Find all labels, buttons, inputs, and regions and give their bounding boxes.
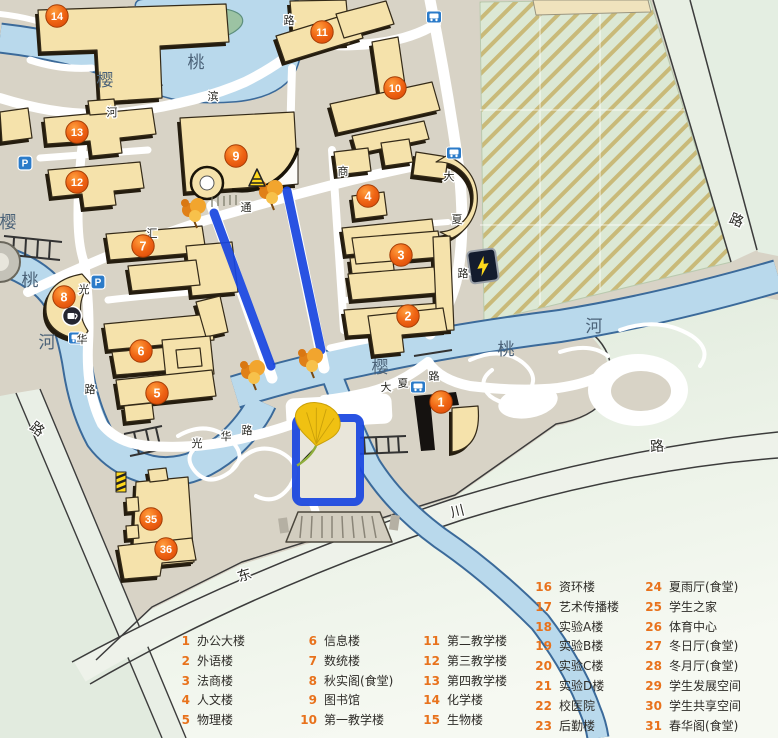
legend-item: 7数统楼 [297,652,393,672]
marker-6[interactable]: 6 [130,340,152,362]
marker-2[interactable]: 2 [397,305,419,327]
svg-text:3: 3 [398,248,405,262]
bus-stop-icon[interactable] [411,381,426,393]
svg-text:5: 5 [154,386,161,400]
legend-label: 资环楼 [559,580,595,594]
svg-text:12: 12 [71,177,83,189]
legend-number: 24 [642,578,662,598]
river-label: 桃 [498,340,515,360]
road-label: 路 [85,383,96,396]
campus-map: P P 樱 桃 樱 桃 河 樱 桃 河 河 滨 路 汇 通 商 大 夏 路 大 … [0,0,778,738]
road-label: 商 [338,164,349,178]
legend-label: 生物楼 [447,713,483,727]
legend-number: 13 [420,672,440,692]
legend-number: 23 [532,717,552,737]
legend-number: 28 [642,657,662,677]
legend-item: 13第四教学楼 [420,672,507,692]
road-label: 路 [650,439,665,456]
legend-item: 2外语楼 [170,652,245,672]
marker-35[interactable]: 35 [140,508,162,530]
road-label: 路 [284,14,295,27]
legend-label: 体育中心 [669,620,717,634]
river-label: 樱 [372,358,389,378]
legend-item: 12第三教学楼 [420,652,507,672]
legend-item: 4人文楼 [170,691,245,711]
legend-label: 外语楼 [197,654,233,668]
legend-item: 8秋实阁(食堂) [297,672,393,692]
road-label: 滨 [208,89,219,103]
legend-number: 15 [420,711,440,731]
legend-item: 28冬月厅(食堂) [642,657,741,677]
road-label: 光 [79,282,90,296]
road-label: 路 [242,424,253,437]
legend-number: 29 [642,677,662,697]
legend-label: 校医院 [559,699,595,713]
svg-text:13: 13 [71,127,83,139]
legend-label: 夏雨厅(食堂) [669,580,738,594]
marker-3[interactable]: 3 [390,244,412,266]
marker-36[interactable]: 36 [155,538,177,560]
svg-text:8: 8 [61,290,68,304]
legend-number: 31 [642,717,662,737]
legend-label: 秋实阁(食堂) [324,674,393,688]
legend-item: 27冬日厅(食堂) [642,637,741,657]
svg-text:P: P [22,159,29,170]
legend-label: 办公大楼 [197,634,245,648]
legend-number: 22 [532,697,552,717]
legend-label: 信息楼 [324,634,360,648]
svg-text:4: 4 [365,189,372,203]
river-label: 河 [39,333,56,353]
bus-stop-icon[interactable] [447,147,462,159]
road-label: 夏 [452,213,463,226]
legend-number: 10 [297,711,317,731]
legend-item: 22校医院 [532,697,619,717]
legend-number: 30 [642,697,662,717]
legend-label: 第一教学楼 [324,713,384,727]
legend-column-3: 11第二教学楼 12第三教学楼 13第四教学楼 14化学楼 15生物楼 [420,632,507,731]
legend-item: 21实验D楼 [532,677,619,697]
legend-label: 冬日厅(食堂) [669,639,738,653]
legend-label: 实验B楼 [559,639,603,653]
svg-text:10: 10 [389,83,401,95]
marker-12[interactable]: 12 [66,171,88,193]
road-label: 路 [458,267,469,280]
svg-text:11: 11 [316,27,328,39]
legend-label: 第二教学楼 [447,634,507,648]
legend-number: 18 [532,618,552,638]
legend-label: 人文楼 [197,693,233,707]
legend-item: 16资环楼 [532,578,619,598]
legend-label: 学生共享空间 [669,699,741,713]
legend-item: 26体育中心 [642,618,741,638]
marker-10[interactable]: 10 [384,77,406,99]
legend-label: 实验C楼 [559,659,603,673]
parking-icon[interactable]: P [18,156,32,170]
legend-label: 春华阁(食堂) [669,719,738,733]
legend-item: 14化学楼 [420,691,507,711]
road-label: 通 [241,201,252,214]
legend-number: 25 [642,598,662,618]
legend-item: 19实验B楼 [532,637,619,657]
legend-number: 21 [532,677,552,697]
road-label: 大 [444,169,455,183]
legend-number: 7 [297,652,317,672]
legend-label: 法商楼 [197,674,233,688]
svg-text:6: 6 [138,344,145,358]
legend-number: 3 [170,672,190,692]
river-label: 桃 [188,53,205,73]
marker-4[interactable]: 4 [357,185,379,207]
parking-icon[interactable]: P [91,275,105,289]
legend-item: 25学生之家 [642,598,741,618]
road-label: 大 [380,380,392,395]
legend-number: 4 [170,691,190,711]
legend-number: 2 [170,652,190,672]
legend-label: 第四教学楼 [447,674,507,688]
svg-text:9: 9 [233,149,240,163]
main-gate [278,512,400,542]
legend-column-2: 6信息楼 7数统楼 8秋实阁(食堂) 9图书馆 10第一教学楼 [297,632,393,731]
legend-number: 11 [420,632,440,652]
svg-text:1: 1 [438,395,445,409]
legend-item: 5物理楼 [170,711,245,731]
legend-item: 31春华阁(食堂) [642,717,741,737]
legend-label: 艺术传播楼 [559,600,619,614]
road-label: 路 [428,370,440,384]
legend-item: 9图书馆 [297,691,393,711]
legend-item: 6信息楼 [297,632,393,652]
legend-item: 30学生共享空间 [642,697,741,717]
legend-item: 23后勤楼 [532,717,619,737]
legend-column-5: 24夏雨厅(食堂) 25学生之家 26体育中心 27冬日厅(食堂) 28冬月厅(… [642,578,741,736]
legend-label: 数统楼 [324,654,360,668]
svg-text:35: 35 [145,514,157,526]
legend-item: 20实验C楼 [532,657,619,677]
svg-text:P: P [95,278,102,289]
legend-label: 第三教学楼 [447,654,507,668]
legend-item: 29学生发展空间 [642,677,741,697]
legend-label: 学生之家 [669,600,717,614]
road-label: 光 [192,436,203,450]
legend-number: 26 [642,618,662,638]
legend-number: 5 [170,711,190,731]
legend-item: 17艺术传播楼 [532,598,619,618]
legend-column-1: 1办公大楼 2外语楼 3法商楼 4人文楼 5物理楼 [170,632,245,731]
legend-number: 20 [532,657,552,677]
legend-item: 10第一教学楼 [297,711,393,731]
legend-item: 3法商楼 [170,672,245,692]
legend-number: 12 [420,652,440,672]
svg-text:36: 36 [160,544,172,556]
marker-11[interactable]: 11 [311,21,333,43]
marker-5[interactable]: 5 [146,382,168,404]
marker-7[interactable]: 7 [132,235,154,257]
coffee-icon[interactable] [63,307,82,326]
legend-label: 学生发展空间 [669,679,741,693]
river-label: 桃 [22,271,39,291]
legend-label: 实验D楼 [559,679,604,693]
legend-number: 1 [170,632,190,652]
road-label: 华 [221,429,232,443]
charging-station-icon[interactable] [467,248,499,284]
bus-stop-icon[interactable] [427,11,442,23]
legend-number: 16 [532,578,552,598]
road-label: 河 [107,106,118,119]
road-label: 夏 [397,377,409,391]
legend-item: 11第二教学楼 [420,632,507,652]
legend-item: 1办公大楼 [170,632,245,652]
legend-label: 图书馆 [324,693,360,707]
legend-number: 14 [420,691,440,711]
svg-text:14: 14 [51,11,64,23]
legend-number: 17 [532,598,552,618]
marker-9[interactable]: 9 [225,145,247,167]
striped-sign-icon [116,472,126,492]
legend-number: 27 [642,637,662,657]
marker-14[interactable]: 14 [46,5,68,27]
river-label: 河 [586,317,603,337]
marker-13[interactable]: 13 [66,121,88,143]
legend-number: 6 [297,632,317,652]
marker-8[interactable]: 8 [53,286,75,308]
legend-column-4: 16资环楼 17艺术传播楼 18实验A楼 19实验B楼 20实验C楼 21实验D… [532,578,619,736]
legend-label: 物理楼 [197,713,233,727]
legend-number: 9 [297,691,317,711]
legend-number: 8 [297,672,317,692]
legend-item: 15生物楼 [420,711,507,731]
legend-label: 实验A楼 [559,620,603,634]
legend-label: 后勤楼 [559,719,595,733]
legend-label: 冬月厅(食堂) [669,659,738,673]
svg-text:7: 7 [140,239,147,253]
river-label: 樱 [0,213,17,233]
svg-text:2: 2 [405,309,412,323]
marker-1[interactable]: 1 [430,391,452,413]
river-label: 樱 [97,71,114,91]
legend-item: 18实验A楼 [532,618,619,638]
legend-item: 24夏雨厅(食堂) [642,578,741,598]
legend-number: 19 [532,637,552,657]
road-label: 华 [77,332,88,346]
legend-label: 化学楼 [447,693,483,707]
